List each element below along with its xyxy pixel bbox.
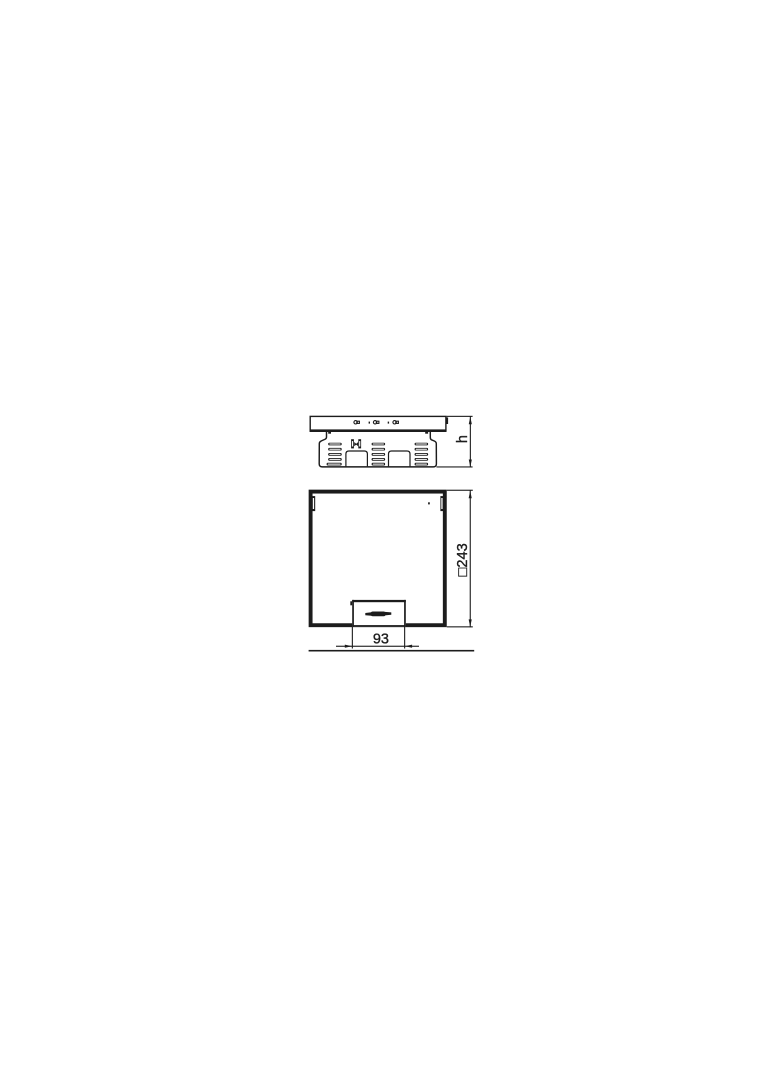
svg-text:h: h: [455, 435, 471, 443]
svg-text:93: 93: [373, 631, 389, 647]
svg-text:□243: □243: [455, 543, 471, 576]
